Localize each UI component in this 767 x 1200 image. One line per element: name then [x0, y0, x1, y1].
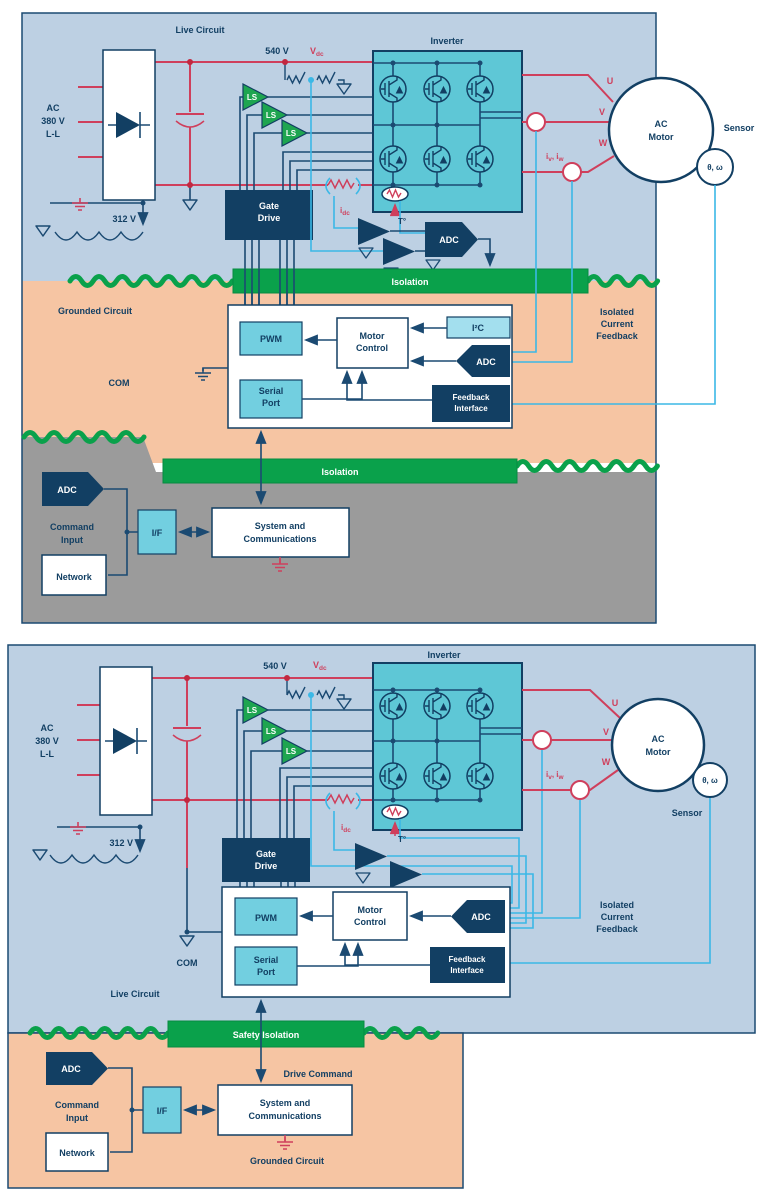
gate-drive-label: Gate — [256, 849, 276, 859]
adc-command-label: ADC — [61, 1064, 81, 1074]
dc-bus-voltage-label: 540 V — [263, 661, 287, 671]
system-comms-label: System and — [260, 1098, 311, 1108]
current-sensor-icon — [533, 731, 551, 749]
inverter-label: Inverter — [427, 650, 461, 660]
if-label: I/F — [152, 528, 163, 538]
svg-text:Feedback: Feedback — [596, 331, 639, 341]
sensor-label: Sensor — [672, 808, 703, 818]
svg-text:380 V: 380 V — [41, 116, 65, 126]
svg-text:380 V: 380 V — [35, 736, 59, 746]
ls-label: LS — [247, 93, 258, 102]
phase-w-label: W — [602, 757, 611, 767]
adc-feedback-label: ADC — [476, 357, 496, 367]
isolation-top-label: Isolation — [391, 277, 428, 287]
system-comms-box — [218, 1085, 352, 1135]
temp-label: T° — [398, 835, 406, 844]
feedback-interface-box — [430, 947, 505, 983]
motor-control-label: Motor — [358, 905, 383, 915]
pwm-label: PWM — [255, 913, 277, 923]
current-sensor-icon — [563, 163, 581, 181]
svg-text:Control: Control — [354, 917, 386, 927]
svg-text:Communications: Communications — [243, 534, 316, 544]
gate-drive-box — [222, 838, 310, 882]
svg-text:Current: Current — [601, 319, 634, 329]
feedback-interface-label: Feedback — [449, 955, 486, 964]
serial-port-box — [235, 947, 297, 985]
temp-label: T° — [398, 217, 406, 226]
grounded-circuit-label: Grounded Circuit — [58, 306, 132, 316]
safety-isolation-label: Safety Isolation — [233, 1030, 300, 1040]
theta-omega-label: θ, ω — [702, 776, 718, 785]
diagrams-canvas: Live Circuit 540 V Vdc Inverter AC 380 V… — [0, 0, 767, 1200]
grounded-circuit-label: Grounded Circuit — [250, 1156, 324, 1166]
com-label: COM — [177, 958, 198, 968]
thermistor-icon — [382, 805, 408, 819]
system-comms-label: System and — [255, 521, 306, 531]
phase-w-label: W — [599, 138, 608, 148]
svg-text:LS: LS — [286, 129, 297, 138]
ac-motor-label: AC — [652, 734, 665, 744]
ac-input-label: AC — [41, 723, 54, 733]
inverter-label: Inverter — [430, 36, 464, 46]
if-label: I/F — [157, 1106, 168, 1116]
thermistor-icon — [382, 187, 408, 201]
svg-text:Control: Control — [356, 343, 388, 353]
adc-feedback-label: ADC — [471, 912, 491, 922]
svg-text:Input: Input — [66, 1113, 88, 1123]
ac-input-label: AC — [47, 103, 60, 113]
serial-port-label: Serial — [259, 386, 284, 396]
current-sensor-icon — [571, 781, 589, 799]
current-sensor-icon — [527, 113, 545, 131]
svg-text:LS: LS — [266, 111, 277, 120]
svg-text:Motor: Motor — [646, 747, 671, 757]
drive-command-label: Drive Command — [283, 1069, 352, 1079]
serial-port-label: Serial — [254, 955, 279, 965]
svg-text:Communications: Communications — [248, 1111, 321, 1121]
svg-text:Drive: Drive — [258, 213, 281, 223]
network-label: Network — [59, 1148, 96, 1158]
isolated-current-feedback-label: Isolated — [600, 307, 634, 317]
system-comms-box — [212, 508, 349, 557]
svg-text:Current: Current — [601, 912, 634, 922]
svg-text:Interface: Interface — [450, 966, 484, 975]
phase-u-label: U — [607, 76, 614, 86]
com-label: COM — [109, 378, 130, 388]
dc-bus-voltage-label: 540 V — [265, 46, 289, 56]
phase-v-label: V — [603, 727, 609, 737]
adc-command-label: ADC — [57, 485, 77, 495]
motor-drive-isolation-figures: Live Circuit 540 V Vdc Inverter AC 380 V… — [0, 0, 767, 1200]
feedback-interface-label: Feedback — [453, 393, 490, 402]
adc-live-label: ADC — [439, 235, 459, 245]
theta-omega-label: θ, ω — [707, 163, 723, 172]
svg-text:L-L: L-L — [46, 129, 60, 139]
phase-v-label: V — [599, 107, 605, 117]
ac-motor-label: AC — [655, 119, 668, 129]
ls-label: LS — [247, 706, 258, 715]
sensor-label: Sensor — [724, 123, 755, 133]
svg-text:LS: LS — [286, 747, 297, 756]
svg-text:Port: Port — [262, 398, 280, 408]
gate-drive-label: Gate — [259, 201, 279, 211]
isolated-current-feedback-label: Isolated — [600, 900, 634, 910]
phase-u-label: U — [612, 698, 619, 708]
svg-text:L-L: L-L — [40, 749, 54, 759]
command-input-label: Command — [50, 522, 94, 532]
live-circuit-label: Live Circuit — [110, 989, 159, 999]
i2c-label: I²C — [472, 323, 484, 333]
live-circuit-label: Live Circuit — [175, 25, 224, 35]
command-input-label: Command — [55, 1100, 99, 1110]
ac-motor — [612, 699, 704, 791]
isolation-bottom-label: Isolation — [321, 467, 358, 477]
svg-text:Input: Input — [61, 535, 83, 545]
diagram-1-full-isolation: Live Circuit 540 V Vdc Inverter AC 380 V… — [22, 13, 755, 623]
motor-control-label: Motor — [360, 331, 385, 341]
network-label: Network — [56, 572, 93, 582]
svg-text:Port: Port — [257, 967, 275, 977]
ripple-voltage-label: 312 V — [109, 838, 133, 848]
diagram-2-safety-isolation: 540 V Vdc Inverter AC 380 V L-L LS LS LS… — [8, 645, 755, 1188]
svg-text:Drive: Drive — [255, 861, 278, 871]
pwm-label: PWM — [260, 334, 282, 344]
svg-text:Motor: Motor — [649, 132, 674, 142]
motor-control-box — [333, 892, 407, 940]
svg-text:Interface: Interface — [454, 404, 488, 413]
svg-text:Feedback: Feedback — [596, 924, 639, 934]
svg-text:LS: LS — [266, 727, 277, 736]
ripple-voltage-label: 312 V — [112, 214, 136, 224]
